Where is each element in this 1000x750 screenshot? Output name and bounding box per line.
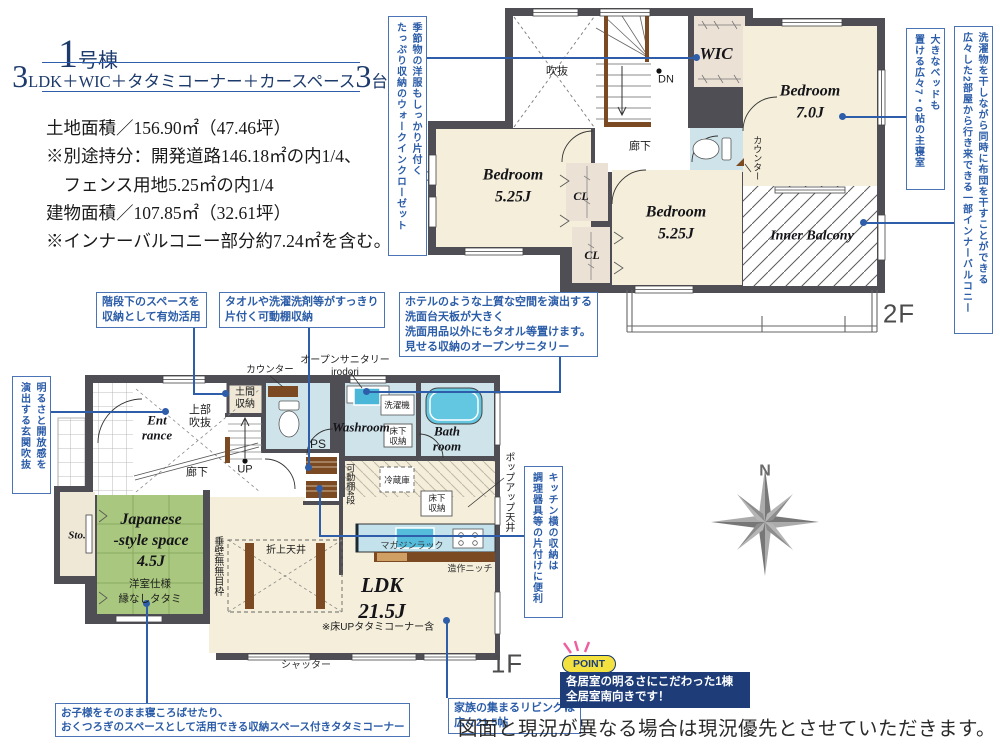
closet-cl-2: CL [584,248,599,262]
room-bedroom-525-left: Bedroom 5.25J [483,165,543,210]
disclaimer: 図面と現況が異なる場合は現況優先とさせていただきます。 [458,712,996,741]
wall-note-label: 垂壁無無目枠 [211,536,223,596]
connector-wic [414,57,697,59]
ldk-note: ※床UPタタミコーナー含 [322,622,434,634]
hallway-2f: 廊下 [629,141,651,154]
floor-label-2f: 2F [883,299,915,330]
point-badge: POINT [562,655,616,673]
callout-kitchen-storage: キッチン横の収納は 調理器具等の片付けに便利 [524,466,563,618]
room-bedroom-7: Bedroom 7.0J [780,81,840,126]
room-japanese-style: Japanese -style space 4.5J [113,510,188,572]
point-note: 各居室の明るさにこだわった1棟 全居室南向きです！ [560,672,750,708]
spec-line: 土地面積／156.90㎡（47.46坪） [46,114,391,142]
connector-living-dot [443,617,450,624]
connector-kitchen-h [319,535,524,537]
callout-tatami-corner: お子様をそのまま寝ころばせたり、 おくつろぎのスペースとして活用できる収納スペー… [55,703,410,737]
compass-north-label: N [759,463,771,482]
spec-line: ※インナーバルコニー部分約7.24㎡を含む。 [46,227,391,255]
ps-label: PS [310,437,326,451]
room-bedroom-525-right: Bedroom 5.25J [646,202,706,247]
compass-rose [711,468,819,576]
upper-void-1f: 上部 吹抜 [189,404,211,430]
spec-line: フェンス用地5.25㎡の内1/4 [46,171,391,199]
coffered-ceiling-label: 折上天井 [266,545,306,557]
connector-understairs-h [193,393,225,395]
connector-sanitary-v [559,352,561,393]
room-washroom: Washroom [332,419,390,434]
connector-kitchen-v [319,489,321,537]
room-storage: Sto. [68,530,85,543]
room-inner-balcony: Inner Balcony [770,229,854,246]
callout-genkan-void: 明るさと開放感を 演出する玄関吹抜 [12,376,51,494]
header-rule-bottom [42,91,360,92]
connector-balcony [865,222,955,224]
doma-storage: 土間 収納 [235,387,255,411]
washer-label: 洗濯機 [384,400,410,410]
property-specs: 土地面積／156.90㎡（47.46坪） ※別途持分：開発道路146.18㎡の内… [46,114,391,256]
connector-tatami [146,604,148,703]
underfloor-kitchen-label: 床下 収納 [428,493,445,513]
room-wic: WIC [699,44,732,64]
callout-towel-shelf: タオルや洗濯洗剤等がすっきり 片付く可動棚収納 [219,292,385,328]
stairs-dn-label: DN [658,74,674,87]
movable-shelf-label: 可動棚4段 [345,463,356,504]
layout-count-1: 3 [12,58,28,94]
room-ldk: LDK 21.5J [358,572,405,625]
room-void-2f: 吹抜 [546,66,568,79]
floor-label-1f: 1F [491,649,523,680]
point-rays-icon [564,641,589,653]
callout-wic: 季節物の洋服もしっかり片付く たっぷり収納のウォークインクローゼット [388,16,427,256]
shutter-label: シャッター [281,660,331,672]
connector-living [446,621,448,698]
counter-2f: カウンター [752,136,763,181]
open-sanitary-label: オープンサニタリー irodori [300,355,389,379]
floorplan-flyer: 1号棟 3LDK＋WIC＋タタミコーナー＋カースペース3台 土地面積／156.9… [0,0,1000,750]
connector-master [843,116,906,118]
floorplan-geometry [0,0,1000,750]
connector-understairs-dot [222,390,229,397]
connector-sanitary-h [368,391,561,393]
niche-label: 造作ニッチ [447,564,492,575]
magazine-rack-label: マガジンラック [380,541,443,552]
connector-towel-dot [305,464,312,471]
connector-understairs-v [193,326,195,395]
spec-line: 建物面積／107.85㎡（32.61坪） [46,199,391,227]
callout-inner-balcony: 洗濯物を干しながら同時に布団を干すことができる 広々した2部屋から行き来できる一… [954,26,993,334]
connector-kitchen-dot [316,485,323,492]
hallway-1f: 廊下 [186,467,208,480]
connector-sanitary-dot [363,388,370,395]
callout-master-bedroom: 大きなベッドも 置ける広々7・0帖の主寝室 [906,28,945,190]
counter-1f: カウンター [246,364,294,375]
closet-cl-1: CL [573,189,588,203]
room-entrance: Ent rance [142,413,172,444]
underfloor-wash-label: 床下 収納 [389,426,406,446]
japanese-style-sub: 洋室仕様 縁なしタタミ [119,577,182,607]
layout-tail: 台 [371,72,388,91]
room-bathroom: Bath room [433,424,461,455]
callout-under-stairs: 階段下のスペースを 収納として有効活用 [96,292,207,328]
spec-line: ※別途持分：開発道路146.18㎡の内1/4、 [46,142,391,170]
connector-balcony-dot [860,219,867,226]
callout-open-sanitary: ホテルのような上質な空間を演出する 洗面台天板が大きく 洗面用品以外にもタオル等… [399,292,598,357]
stairs-up-label: UP [237,464,252,477]
layout-count-2: 3 [355,58,371,94]
layout-mid: LDK＋WIC＋タタミコーナー＋カースペース [28,72,355,91]
fridge-label: 冷蔵庫 [384,475,410,485]
popup-ceiling-label: ポップアップ天井 [502,452,514,532]
